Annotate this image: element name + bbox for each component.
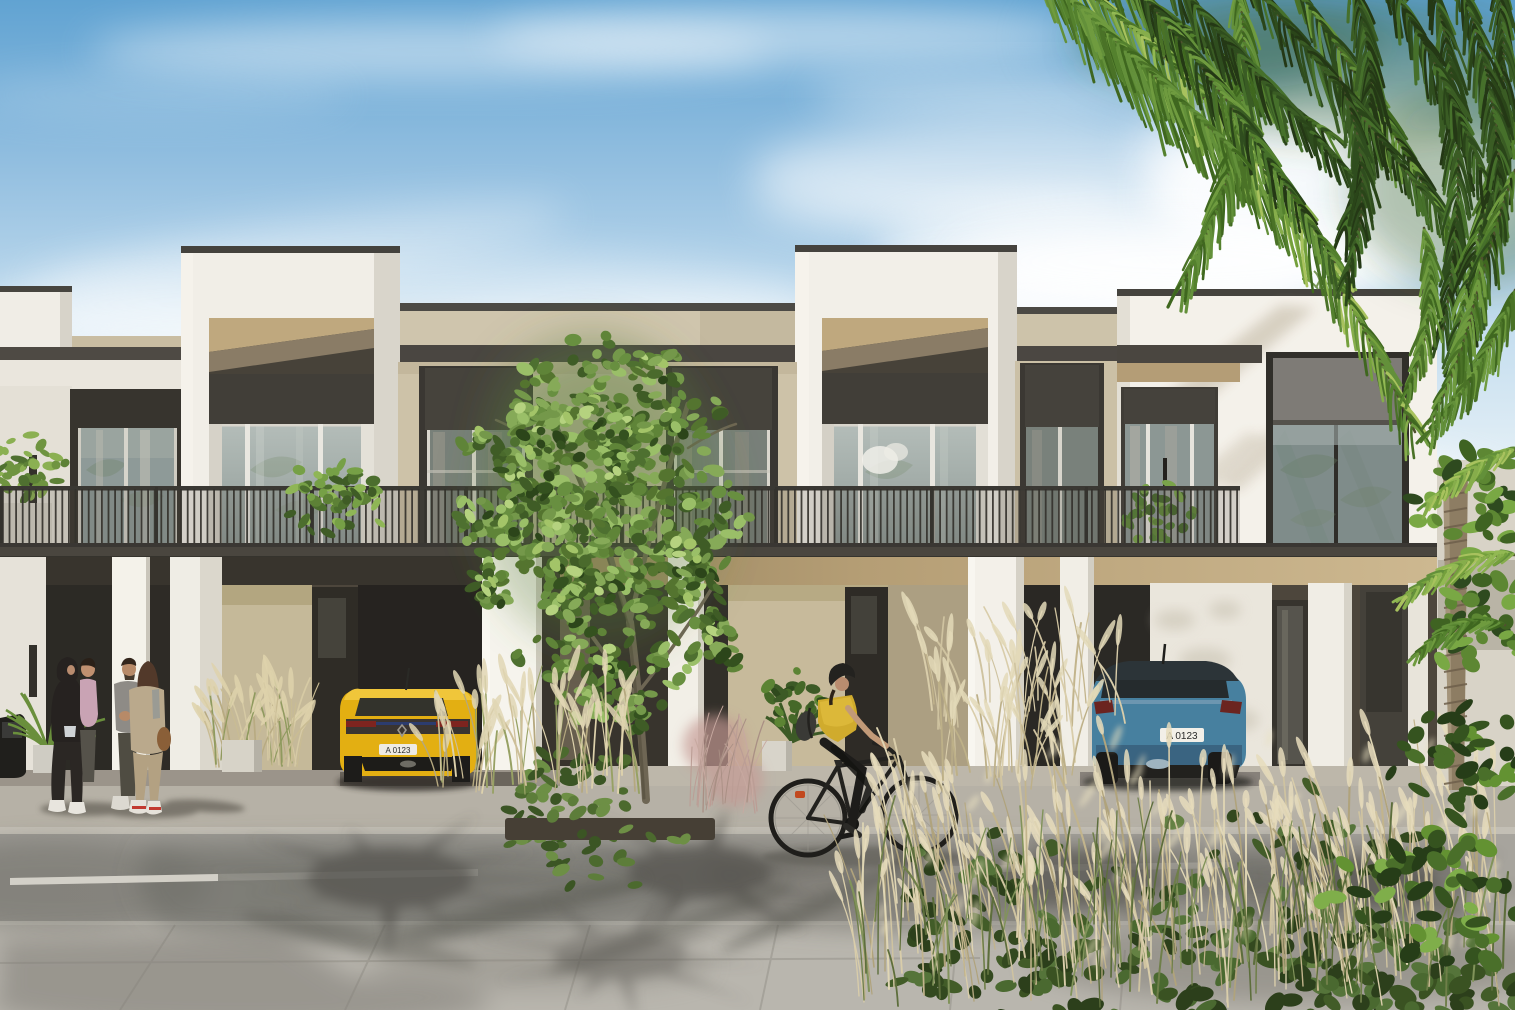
svg-text:A 0123: A 0123 [386,746,411,755]
